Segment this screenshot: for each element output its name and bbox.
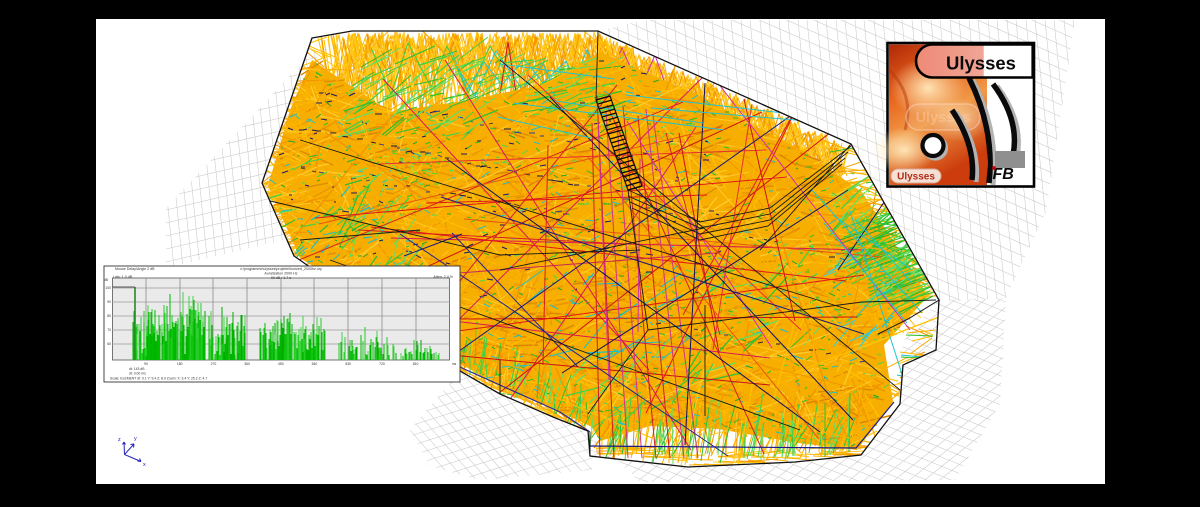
svg-text:ms: ms xyxy=(452,362,457,366)
svg-text:Scale: ELEMENT dt: 0.1: Scale: ELEMENT dt: 0.1 Y: 9.4 Z: 8.0 Zoo… xyxy=(110,377,207,381)
svg-text:90: 90 xyxy=(144,362,148,366)
svg-text:90 dB / 1.7 s: 90 dB / 1.7 s xyxy=(271,276,291,280)
svg-text:Ulysses: Ulysses xyxy=(946,53,1016,74)
svg-text:dt: 0.00 ms: dt: 0.00 ms xyxy=(129,372,146,376)
svg-text:80: 80 xyxy=(107,314,111,318)
svg-text:iFB: iFB xyxy=(988,166,1014,183)
svg-text:x: x xyxy=(143,462,146,468)
svg-text:450: 450 xyxy=(278,362,284,366)
svg-text:dB: dB xyxy=(104,278,108,282)
svg-text:630: 630 xyxy=(345,362,351,366)
svg-text:Mouse Delay/Angle 2 dB: Mouse Delay/Angle 2 dB xyxy=(115,267,155,271)
svg-text:y: y xyxy=(134,436,137,442)
svg-text:Auralization 2000 Hz: Auralization 2000 Hz xyxy=(264,272,297,276)
svg-text:270: 270 xyxy=(211,362,217,366)
svg-text:c:\programme\ulysses\projekte\: c:\programme\ulysses\projekte\konzert_20… xyxy=(240,267,322,271)
svg-text:720: 720 xyxy=(379,362,385,366)
svg-text:100: 100 xyxy=(105,286,111,290)
svg-text:70: 70 xyxy=(107,328,111,332)
svg-text:Atten: 2.4 %: Atten: 2.4 % xyxy=(433,275,453,279)
svg-text:60: 60 xyxy=(107,342,111,346)
svg-text:180: 180 xyxy=(177,362,183,366)
svg-text:dt: 143 dB: dt: 143 dB xyxy=(129,367,145,371)
svg-text:540: 540 xyxy=(312,362,318,366)
svg-text:90: 90 xyxy=(107,300,111,304)
svg-text:Lats: 1.0 dB: Lats: 1.0 dB xyxy=(113,275,133,279)
svg-text:Ulysses: Ulysses xyxy=(897,172,935,183)
svg-text:z: z xyxy=(118,437,121,443)
svg-text:360: 360 xyxy=(244,362,250,366)
svg-text:810: 810 xyxy=(413,362,419,366)
